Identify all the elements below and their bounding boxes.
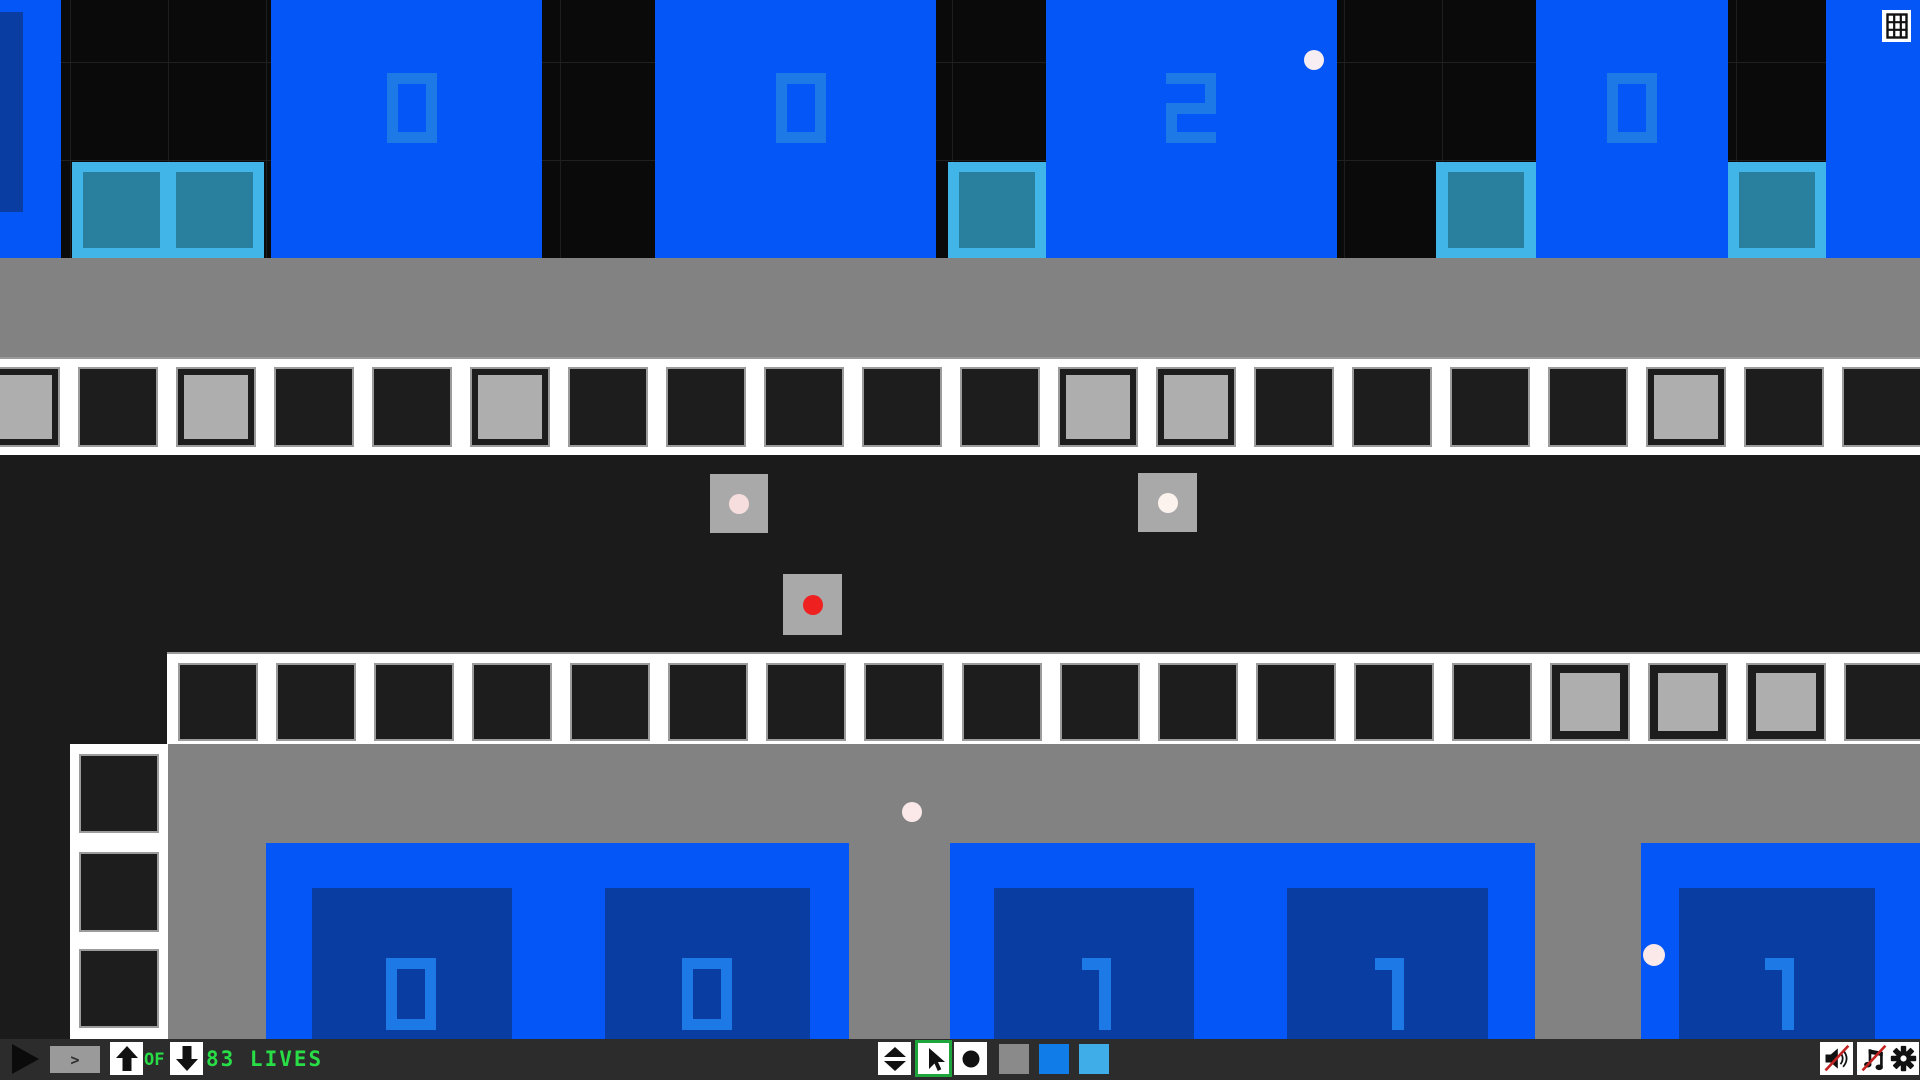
track-cell[interactable] [1450,367,1530,447]
digit-segment [1765,958,1782,970]
track-cell[interactable] [1058,367,1138,447]
track-cell[interactable] [374,663,454,741]
digit-segment [776,73,787,143]
track-cell-gray-block [1066,375,1130,439]
digit-segment [426,73,437,143]
ball[interactable] [902,802,922,822]
track-cell[interactable] [1648,663,1728,741]
track-row [0,357,1920,455]
counter-digit [1370,958,1404,1030]
track-cell[interactable] [570,663,650,741]
teal-pad-cell [176,172,253,248]
grid-toggle-button[interactable] [1882,10,1911,42]
track-cell-gray-block [1560,673,1620,731]
digit-segment [721,958,732,1030]
ball[interactable] [1643,944,1665,966]
step-button[interactable]: > [50,1046,100,1073]
digit-segment [1375,958,1392,970]
cursor-tool-button[interactable] [915,1040,952,1077]
ladder-column [70,744,168,1039]
track-cell[interactable] [1452,663,1532,741]
game-viewport: > OF 83 LIVES [0,0,1920,1080]
track-cell[interactable] [766,663,846,741]
settings-button[interactable] [1887,1042,1919,1075]
teal-pad-cell [1739,172,1815,248]
arrow-up-icon [114,1045,140,1072]
track-cell[interactable] [864,663,944,741]
speed-up-button[interactable] [110,1042,143,1075]
track-cell-gray-block [1658,673,1718,731]
teal-pad-cell [83,172,160,248]
track-cell[interactable] [178,663,258,741]
of-label: OF [144,1050,164,1070]
digit-segment [1782,958,1794,1030]
counter-panel [0,12,23,212]
ball[interactable] [1304,50,1324,70]
sound-mute-button[interactable] [1820,1042,1853,1075]
teal-pad-cell [1448,172,1524,248]
counter-digit [1760,958,1794,1030]
ball-icon [958,1046,984,1072]
counter-digit [1607,73,1657,143]
track-cell-gray-block [1654,375,1718,439]
track-cell[interactable] [1844,663,1920,741]
dot-tile[interactable] [710,474,768,533]
play-icon[interactable] [12,1044,40,1074]
track-cell[interactable] [1548,367,1628,447]
track-cell[interactable] [470,367,550,447]
track-cell[interactable] [568,367,648,447]
digit-segment [1082,958,1099,970]
light-blue-swatch-button[interactable] [1079,1044,1109,1074]
track-cell[interactable] [1156,367,1236,447]
digit-segment [386,958,397,1030]
sort-tool-button[interactable] [878,1042,911,1075]
counter-digit [1077,958,1111,1030]
track-cell[interactable] [1060,663,1140,741]
track-cell-gray-block [478,375,542,439]
tile-ball [803,595,823,615]
counter-digit [776,73,826,143]
lives-counter: 83 LIVES [206,1047,323,1071]
digit-segment [815,73,826,143]
digit-segment [425,958,436,1030]
dot-tile[interactable] [1138,473,1197,532]
track-cell-gray-block [1756,673,1816,731]
gear-icon [1889,1044,1918,1073]
track-cell-gray-block [184,375,248,439]
track-cell[interactable] [666,367,746,447]
track-cell[interactable] [960,367,1040,447]
counter-box[interactable] [0,0,61,258]
counter-box[interactable] [950,843,1535,1039]
track-cell[interactable] [668,663,748,741]
digit-segment [387,73,398,143]
speed-down-button[interactable] [170,1042,203,1075]
track-cell[interactable] [78,367,158,447]
ladder-cell[interactable] [79,852,159,932]
teal-pad-cell [959,172,1035,248]
counter-digit [682,958,732,1030]
track-row [167,652,1920,744]
tile-ball [1158,493,1178,513]
teal-pad[interactable] [72,162,264,258]
track-cell[interactable] [1354,663,1434,741]
teal-pad[interactable] [1436,162,1536,258]
teal-pad[interactable] [948,162,1046,258]
track-cell[interactable] [1352,367,1432,447]
dot-tile[interactable] [783,574,842,635]
digit-segment [1166,132,1216,143]
track-cell[interactable] [274,367,354,447]
grid-icon [1886,13,1908,39]
toolbar: > OF 83 LIVES [0,1039,1920,1080]
track-cell[interactable] [1842,367,1920,447]
track-cell[interactable] [1746,663,1826,741]
ladder-cell[interactable] [79,754,159,833]
track-cell[interactable] [0,367,60,447]
playfield [0,0,1920,1080]
digit-segment [1646,73,1657,143]
digit-segment [682,958,693,1030]
music-note-muted-icon [1859,1044,1888,1073]
track-cell[interactable] [862,367,942,447]
tile-ball [729,494,749,514]
counter-digit [387,73,437,143]
track-cell[interactable] [176,367,256,447]
track-cell[interactable] [472,663,552,741]
track-cell[interactable] [1254,367,1334,447]
digit-segment [1607,73,1618,143]
track-cell[interactable] [1256,663,1336,741]
teal-pad[interactable] [1728,162,1826,258]
counter-digit [1166,73,1216,143]
track-cell[interactable] [1158,663,1238,741]
gray-swatch-button[interactable] [999,1044,1029,1074]
track-cell[interactable] [764,367,844,447]
mid-black-region [0,455,1920,652]
ground-band [0,258,1920,357]
ball-tool-button[interactable] [954,1042,987,1075]
up-down-triangles-icon [882,1045,908,1073]
speaker-muted-icon [1822,1044,1851,1073]
track-cell[interactable] [962,663,1042,741]
arrow-down-icon [174,1045,200,1072]
ladder-cell[interactable] [79,949,159,1028]
digit-segment [1099,958,1111,1030]
track-cell-gray-block [0,375,52,439]
counter-digit [386,958,436,1030]
track-cell[interactable] [372,367,452,447]
track-cell[interactable] [1646,367,1726,447]
track-cell[interactable] [1550,663,1630,741]
cursor-icon [920,1045,948,1073]
counter-box[interactable] [266,843,849,1039]
track-cell[interactable] [1744,367,1824,447]
track-cell[interactable] [276,663,356,741]
music-mute-button[interactable] [1857,1042,1890,1075]
blue-swatch-button[interactable] [1039,1044,1069,1074]
track-cell-gray-block [1164,375,1228,439]
digit-segment [1392,958,1404,1030]
